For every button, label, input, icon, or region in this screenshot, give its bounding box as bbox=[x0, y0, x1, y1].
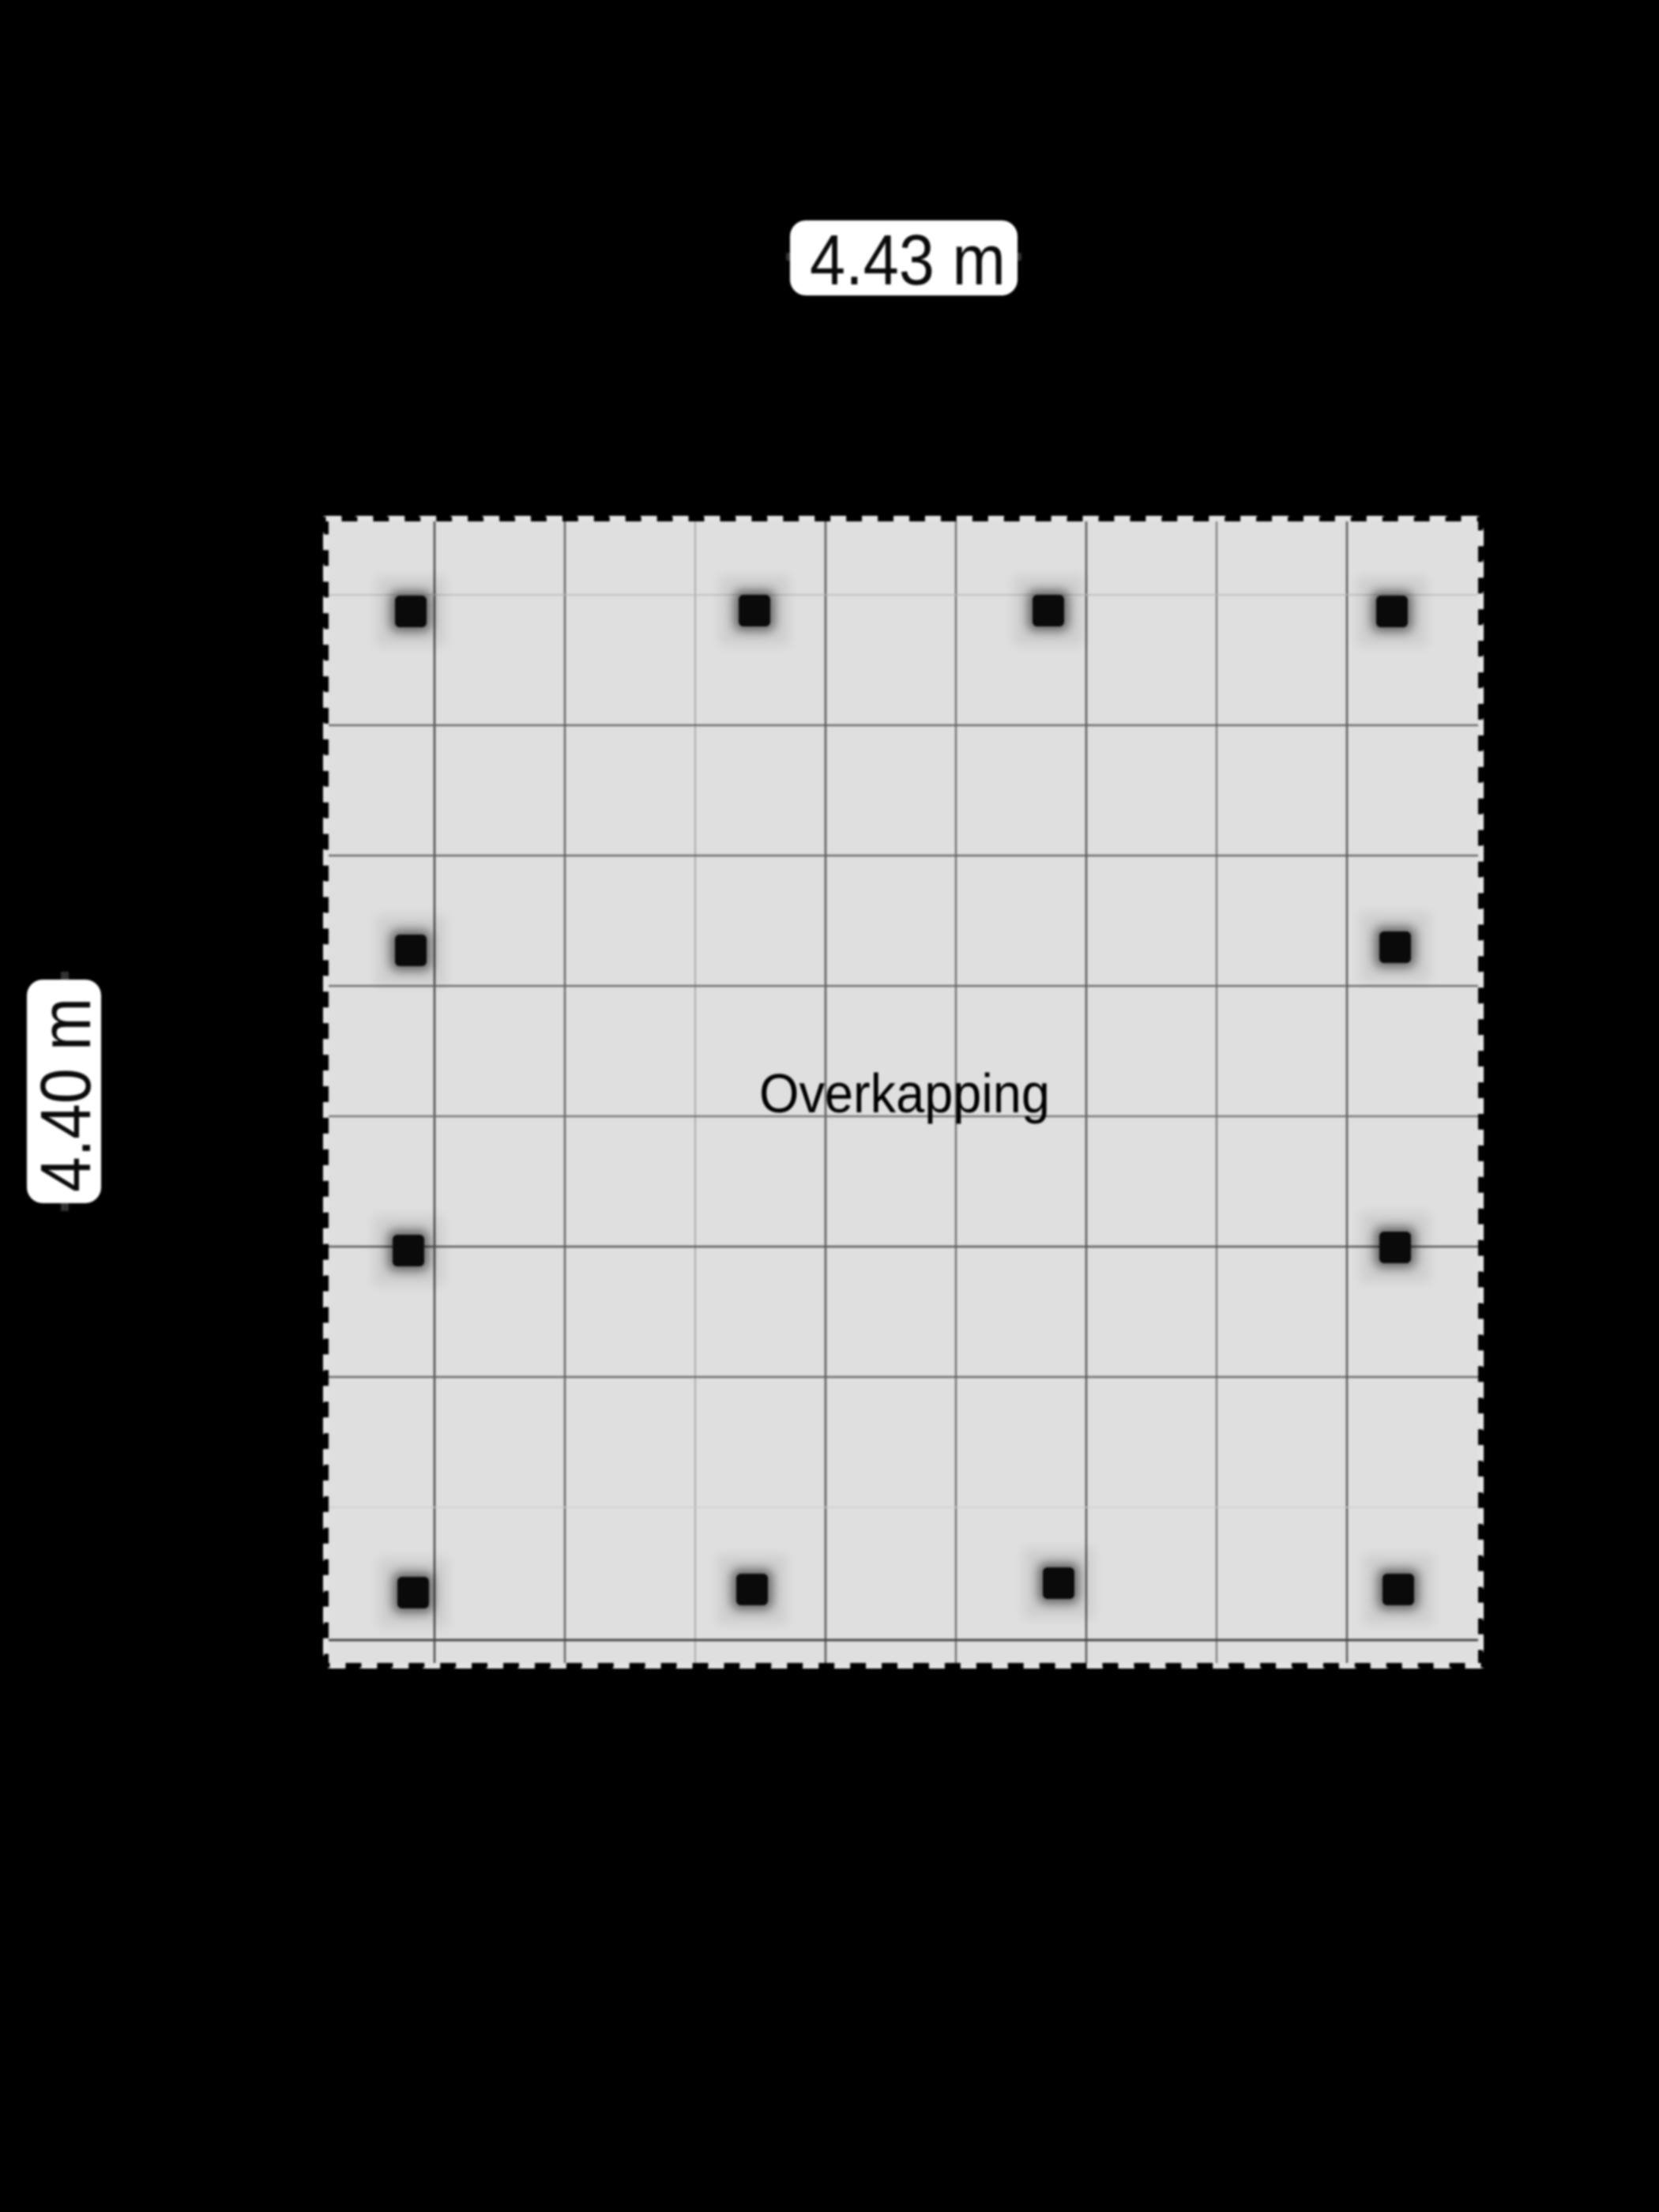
svg-text:4.43 m: 4.43 m bbox=[810, 221, 1006, 300]
svg-text:4.40 m: 4.40 m bbox=[27, 998, 106, 1192]
svg-text:Overkapping: Overkapping bbox=[759, 1063, 1050, 1124]
